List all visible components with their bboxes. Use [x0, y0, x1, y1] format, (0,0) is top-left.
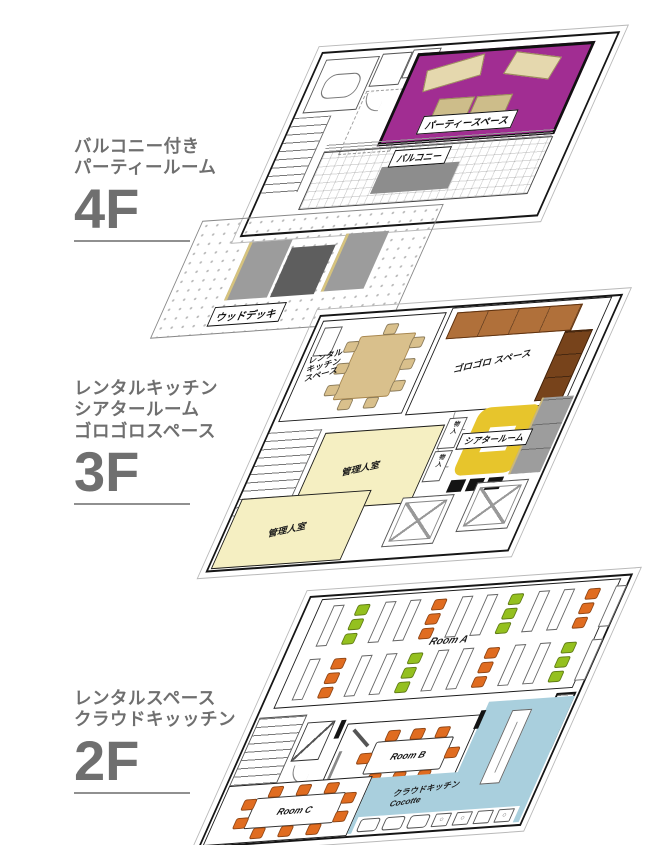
bathtub: [317, 72, 364, 99]
cooktop: ○: [451, 811, 473, 826]
floor-number: 3F: [74, 445, 218, 498]
cooktop: ○: [493, 808, 515, 823]
chair: [330, 657, 348, 669]
chair: [336, 398, 354, 410]
chair-column: [494, 592, 525, 633]
chair-column: [417, 598, 448, 639]
floor-plan-3f: レンタル キッチン スペース ゴロゴロ スペース 管理人室 管理人室 物入 物入: [205, 294, 623, 573]
chair: [577, 602, 595, 614]
chair: [362, 397, 380, 409]
cooktop: ○: [430, 813, 452, 828]
chair: [354, 603, 372, 615]
room-a: Room A: [273, 578, 621, 709]
caretaker-label: 管理人室: [340, 457, 382, 478]
chair: [276, 825, 294, 837]
chair: [483, 646, 501, 658]
floor-number: 2F: [74, 734, 236, 787]
desk: [444, 596, 473, 638]
chair: [477, 661, 495, 673]
floor-title-line: バルコニー付き: [74, 136, 216, 157]
outdoor-table: [370, 162, 460, 194]
floor-title-line: シアタールーム: [74, 399, 218, 420]
desk: [469, 594, 498, 636]
caretaker-label: 管理人室: [266, 519, 308, 540]
chair: [400, 666, 418, 678]
chair: [430, 598, 448, 610]
title-underline: [74, 240, 190, 242]
floor-title-2f: レンタルスペース クラウドキッッチン 2F: [74, 688, 236, 794]
chair-column: [470, 646, 501, 687]
chair-column: [341, 603, 372, 644]
room-c-table: Room C: [243, 792, 347, 829]
chair: [304, 823, 322, 835]
room-c: Room C: [203, 776, 373, 845]
sink: [405, 814, 431, 829]
chair: [554, 655, 572, 667]
floor-title-line: レンタルスペース: [74, 688, 236, 709]
chair: [507, 592, 525, 604]
room-c-table-group: Room C: [227, 780, 363, 842]
desk: [343, 655, 372, 697]
floor-plan-2f: Room A Room B Room C クラウドキッチン Cocotte: [198, 573, 634, 845]
chair: [560, 641, 578, 653]
floor-number: 4F: [74, 182, 216, 235]
desk: [598, 585, 627, 627]
chair: [393, 681, 411, 693]
sofa-mats: [534, 329, 593, 401]
floor-title-line: パーティールーム: [74, 157, 216, 178]
sink: [380, 816, 406, 831]
chair: [470, 675, 488, 687]
theater-seat: [446, 479, 466, 492]
desk: [291, 658, 320, 700]
cooktop: [472, 810, 494, 825]
room-b-table: Room B: [362, 736, 455, 775]
title-underline: [74, 792, 190, 794]
desk: [521, 590, 550, 632]
floor-plan-4f: パーティースペース バルコニー ウッドデッキ: [240, 31, 621, 237]
sink: [356, 818, 382, 833]
floor-title-4f: バルコニー付き パーティールーム 4F: [74, 136, 216, 242]
storage-label: 物入: [447, 420, 462, 435]
floor-title-line: クラウドキッッチン: [74, 709, 236, 730]
desk: [445, 648, 474, 690]
wood-deck-label: ウッドデッキ: [206, 302, 287, 327]
gorogoro-label: ゴロゴロ スペース: [452, 346, 534, 376]
floor-title-line: レンタルキッチン: [74, 378, 218, 399]
desk: [574, 639, 603, 681]
desk: [546, 588, 575, 630]
desk: [315, 605, 344, 647]
chair: [317, 686, 335, 698]
chair: [547, 670, 565, 682]
sofa: [503, 51, 562, 79]
caretaker-room: 管理人室: [211, 490, 372, 569]
floor-guide-poster: バルコニー付き パーティールーム 4F レンタルキッチン シアタールーム ゴロゴ…: [0, 0, 666, 845]
chair-column: [317, 657, 348, 698]
floor-title-line: ゴロゴロスペース: [74, 421, 218, 442]
title-underline: [74, 503, 190, 505]
chair: [406, 652, 424, 664]
chair: [323, 672, 341, 684]
chair-column: [393, 652, 424, 693]
chair: [424, 612, 442, 624]
floor-title-3f: レンタルキッチン シアタールーム ゴロゴロスペース 3F: [74, 378, 218, 505]
desk: [368, 653, 397, 695]
sofa: [422, 53, 485, 92]
storage-label: 物入: [432, 453, 447, 468]
desk: [420, 649, 449, 691]
chair: [249, 827, 267, 839]
chair-column: [547, 641, 578, 682]
desk: [522, 642, 551, 684]
chair-column: [571, 587, 602, 628]
deck-bench: [321, 231, 390, 292]
chair: [501, 607, 519, 619]
desk: [392, 599, 421, 641]
chair: [584, 587, 602, 599]
desk: [497, 644, 526, 686]
chair: [347, 618, 365, 630]
desk: [367, 601, 396, 643]
